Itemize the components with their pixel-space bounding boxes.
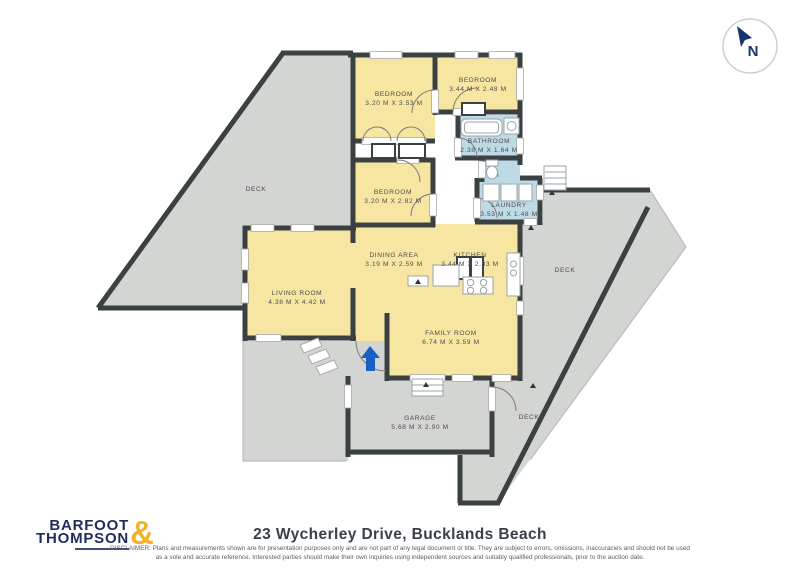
kitchen-sink	[511, 261, 517, 267]
toilet-bowl	[487, 166, 498, 179]
dining-dims: 3.19 M X 2.59 M	[365, 261, 422, 268]
disclaimer-text: DISCLAIMER: Plans and measurements shown…	[0, 545, 800, 562]
dining-label: DINING AREA	[369, 252, 418, 259]
kitchen-label: KITCHEN	[453, 252, 486, 259]
disclaimer-line-2: as a sole and accurate reference. Intere…	[0, 554, 800, 563]
garage-dims: 5.68 M X 2.90 M	[391, 424, 448, 431]
deck-left-label: DECK	[246, 186, 267, 193]
laundry-appliance	[519, 184, 532, 201]
laundry-appliance	[483, 184, 499, 201]
bedroom1-dims: 3.20 M X 3.53 M	[365, 100, 422, 107]
deck-bottom-label: DECK	[519, 414, 540, 421]
compass-n-label: N	[748, 43, 759, 60]
room-bedroom-1	[353, 55, 435, 141]
kitchen-island	[433, 265, 459, 286]
floor-plan: BEDROOM 3.20 M X 3.53 M BEDROOM 3.44 M X…	[0, 0, 800, 584]
deck-right-label: DECK	[555, 267, 576, 274]
bedroom3-dims: 3.20 M X 2.82 M	[364, 198, 421, 205]
laundry-appliance	[501, 184, 517, 201]
toilet-tank	[486, 160, 498, 166]
living-label: LIVING ROOM	[272, 290, 323, 297]
family-entry-steps	[412, 379, 443, 396]
bathroom-dims: 2.38 M X 1.64 M	[460, 147, 517, 154]
laundry-label: LAUNDRY	[491, 202, 527, 209]
room-family-west-strip	[353, 300, 385, 341]
living-dims: 4.38 M X 4.42 M	[268, 299, 325, 306]
north-compass: N	[723, 19, 777, 73]
bedroom2-label: BEDROOM	[459, 77, 497, 84]
floorplan-page: BEDROOM 3.20 M X 3.53 M BEDROOM 3.44 M X…	[0, 0, 800, 584]
bedroom1-label: BEDROOM	[375, 91, 413, 98]
disclaimer-line-1: DISCLAIMER: Plans and measurements shown…	[0, 545, 800, 554]
bedroom2-dims: 3.44 M X 2.48 M	[449, 86, 506, 93]
room-living	[245, 227, 353, 339]
bathroom-label: BATHROOM	[468, 138, 510, 145]
garage-label: GARAGE	[404, 415, 436, 422]
kitchen-sink	[511, 270, 517, 276]
family-dims: 6.74 M X 3.59 M	[422, 339, 479, 346]
kitchen-dims: 3.44 M X 2.83 M	[441, 261, 498, 268]
laundry-dims: 3.53 M X 1.48 M	[480, 211, 537, 218]
bedroom3-label: BEDROOM	[374, 189, 412, 196]
family-label: FAMILY ROOM	[425, 330, 477, 337]
property-address-title: 23 Wycherley Drive, Bucklands Beach	[0, 526, 800, 544]
